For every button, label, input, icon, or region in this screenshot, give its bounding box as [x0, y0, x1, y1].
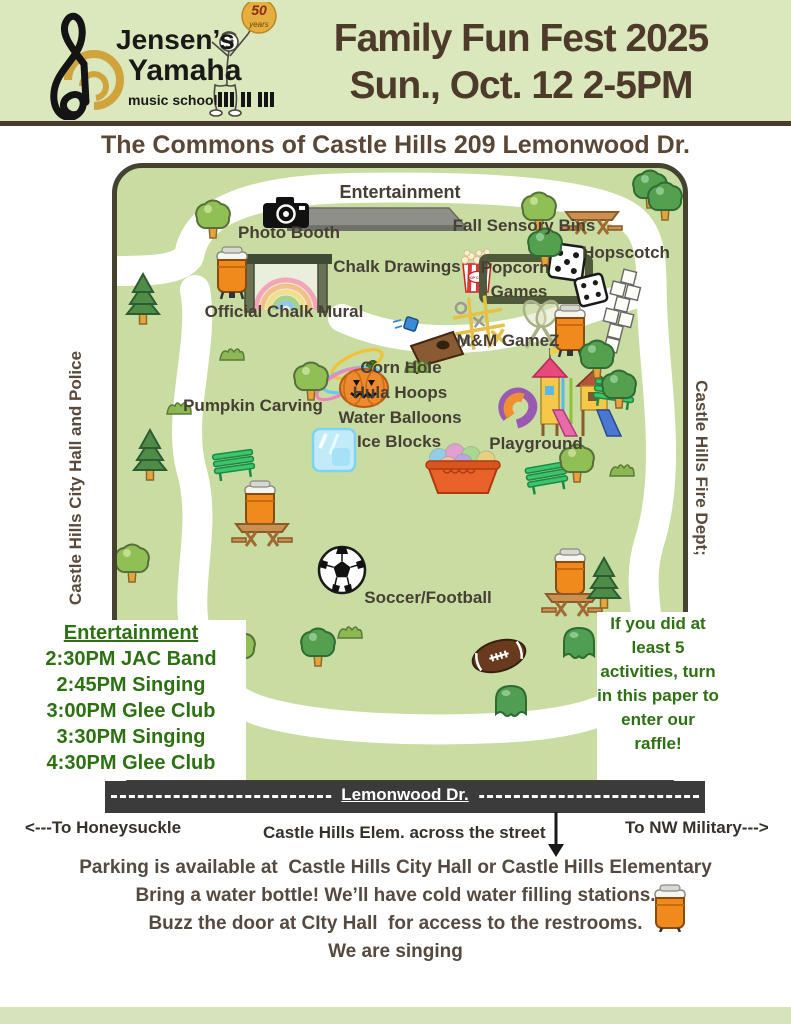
grass-icon — [338, 627, 362, 638]
soccer-ball-icon — [319, 547, 365, 593]
bottom-accent-bar — [0, 1007, 791, 1024]
tree-icon — [648, 183, 682, 220]
tree-icon — [294, 363, 328, 400]
balloon-years-text: years — [248, 20, 269, 29]
down-arrow-icon — [545, 810, 567, 858]
football-icon — [469, 634, 529, 678]
direction-nw-military: To NW Military---> — [625, 818, 769, 838]
tree-icon — [580, 341, 614, 378]
footer-singing-line: We are singing — [0, 941, 791, 963]
schedule-item: 3:30PM Singing — [16, 724, 246, 750]
picnic-table-icon — [232, 524, 292, 546]
label-soccer-football: Soccer/Football — [364, 588, 492, 608]
location-title: The Commons of Castle Hills 209 Lemonwoo… — [0, 131, 791, 160]
ice-block-icon — [313, 429, 355, 471]
tree-icon — [117, 545, 149, 582]
note-castle-hills-elem: Castle Hills Elem. across the street — [263, 823, 546, 843]
label-fall-sensory-bins: Fall Sensory Bins — [453, 216, 596, 236]
label-playground: Playground — [489, 434, 583, 454]
schedule-item: 3:00PM Glee Club — [16, 698, 246, 724]
schedule-item: 4:30PM Glee Club — [16, 750, 246, 776]
entertainment-schedule: Entertainment 2:30PM JAC Band 2:45PM Sin… — [16, 620, 246, 780]
label-corn-hole: Corn Hole — [360, 358, 441, 378]
piano-keys-icon — [218, 92, 279, 107]
road: Lemonwood Dr. — [105, 781, 705, 813]
direction-honeysuckle: <---To Honeysuckle — [25, 818, 181, 838]
schedule-item: 2:30PM JAC Band — [16, 646, 246, 672]
label-popcorn: Popcorn — [481, 258, 550, 278]
label-mm-gamez: M&M GameZ — [457, 331, 560, 351]
left-side-building-label: Castle Hills City Hall and Police — [66, 351, 86, 605]
brand-name-line1: Jensen’s — [116, 26, 235, 54]
label-hopscotch: Hopscotch — [582, 243, 670, 263]
brand-name-line2: Yamaha — [128, 56, 241, 86]
right-side-building-label: Castle Hills Fire Dept; — [691, 380, 711, 556]
raffle-note: If you did at least 5 activities, turn i… — [597, 612, 719, 780]
label-games: Games — [491, 282, 548, 302]
balloon-50-text: 50 — [251, 2, 267, 18]
label-water-balloons: Water Balloons — [338, 408, 461, 428]
water-cooler-icon — [217, 247, 247, 299]
road-name-label: Lemonwood Dr. — [331, 785, 479, 805]
schedule-item: 2:45PM Singing — [16, 672, 246, 698]
bush-icon — [496, 686, 526, 716]
label-hula-hoops: Hula Hoops — [353, 383, 447, 403]
treble-clef-icon — [54, 16, 120, 117]
label-pumpkin-carving: Pumpkin Carving — [183, 396, 323, 416]
grass-icon — [220, 349, 244, 360]
grass-icon — [610, 465, 634, 476]
flyer-page: 50 years Jensen’s Yamaha music school Fa… — [0, 0, 791, 1024]
water-cooler-icon — [652, 884, 688, 932]
event-title-line2: Sun., Oct. 12 2-5PM — [278, 63, 764, 110]
pine-tree-icon — [134, 430, 166, 480]
header-banner: 50 years Jensen’s Yamaha music school Fa… — [0, 0, 791, 126]
brand-tagline: music school — [128, 93, 217, 107]
label-photo-booth: Photo Booth — [238, 223, 340, 243]
bush-icon — [564, 628, 594, 658]
event-title-line1: Family Fun Fest 2025 — [278, 16, 764, 63]
label-official-chalk-mural: Official Chalk Mural — [205, 302, 364, 322]
event-title: Family Fun Fest 2025 Sun., Oct. 12 2-5PM — [278, 16, 764, 110]
label-entertainment: Entertainment — [339, 182, 460, 203]
label-chalk-drawings: Chalk Drawings — [333, 257, 461, 277]
label-ice-blocks: Ice Blocks — [357, 432, 441, 452]
footer-parking-line: Parking is available at Castle Hills Cit… — [0, 857, 791, 879]
bench-icon — [212, 449, 255, 481]
tree-icon — [301, 629, 335, 666]
schedule-heading: Entertainment — [16, 620, 246, 646]
